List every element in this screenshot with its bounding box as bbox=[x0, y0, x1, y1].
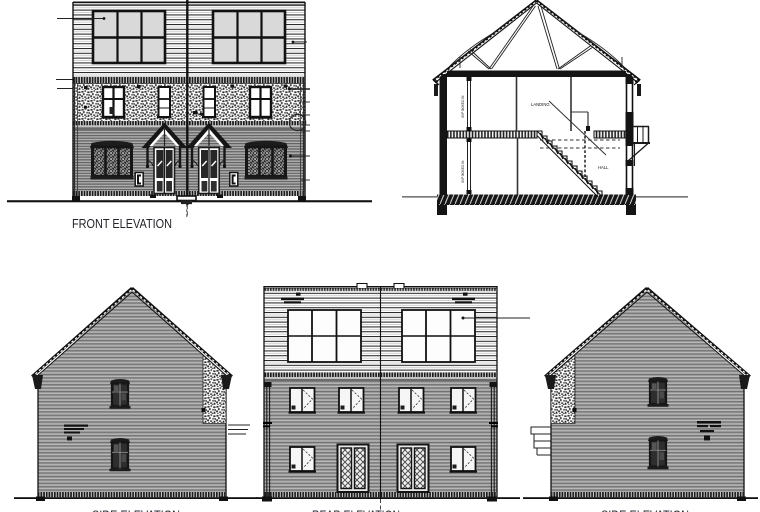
svg-text:REAR ELEVATION: REAR ELEVATION bbox=[312, 509, 400, 512]
svg-text:FRONT ELEVATION: FRONT ELEVATION bbox=[72, 217, 172, 231]
svg-text:SIDE ELEVATION: SIDE ELEVATION bbox=[92, 509, 180, 512]
svg-text:LANDING: LANDING bbox=[531, 102, 550, 107]
svg-text:HALL: HALL bbox=[598, 165, 609, 170]
svg-text:SIDE ELEVATION: SIDE ELEVATION bbox=[601, 509, 689, 512]
svg-text:SVP BOXED IN: SVP BOXED IN bbox=[461, 160, 465, 183]
svg-text:SVP BOXED IN: SVP BOXED IN bbox=[461, 95, 465, 118]
